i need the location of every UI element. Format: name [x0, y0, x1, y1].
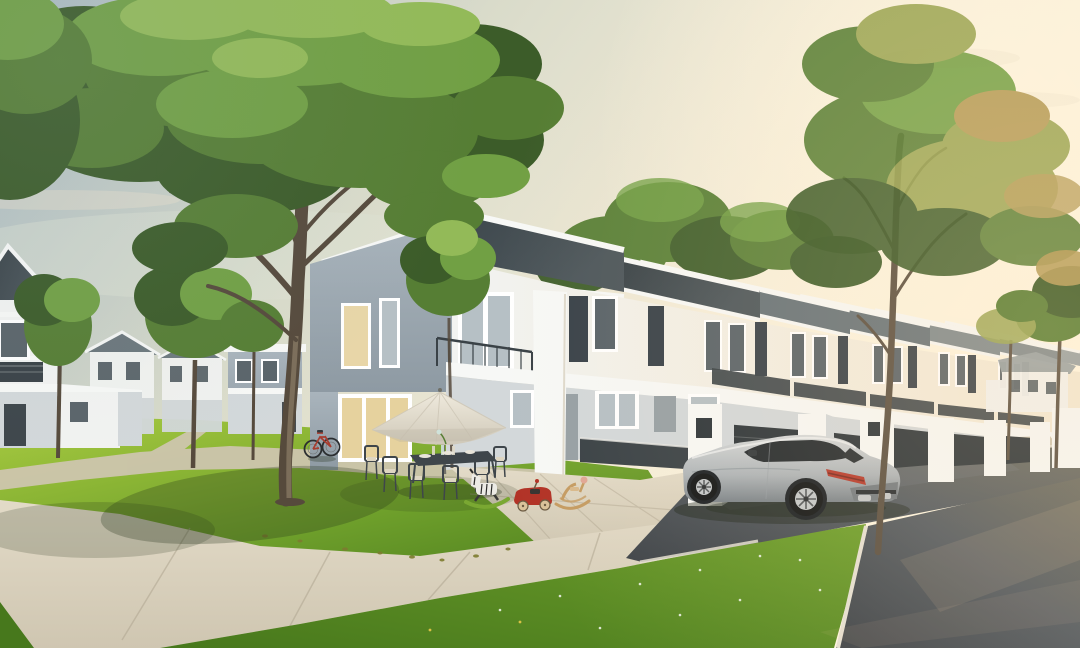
light-overlays	[0, 0, 1080, 648]
estate-rendering: Photorealistic rendering of a modern hou…	[0, 0, 1080, 648]
rendering-canvas: Photorealistic rendering of a modern hou…	[0, 0, 1080, 648]
